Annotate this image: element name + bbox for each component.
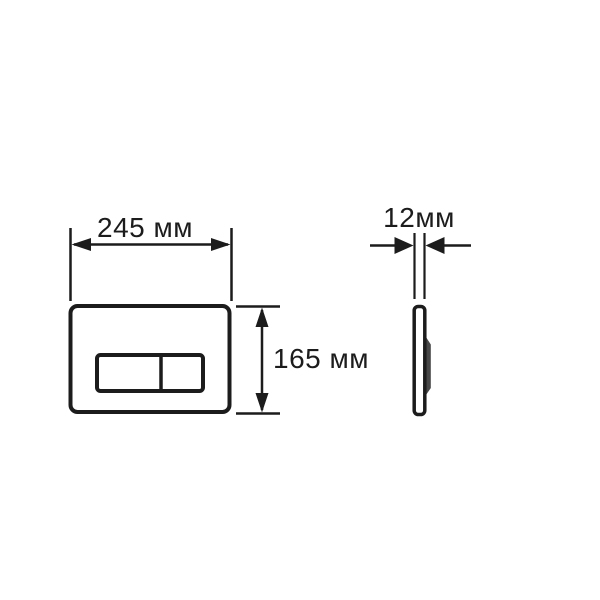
height-dimension: 165 мм bbox=[236, 307, 369, 414]
flush-plate-front-outline bbox=[71, 306, 230, 412]
technical-drawing: 245 мм 165 мм 12мм bbox=[0, 0, 600, 600]
arrowhead-up-icon bbox=[256, 308, 269, 328]
thickness-dimension: 12мм bbox=[370, 202, 471, 299]
front-view bbox=[71, 306, 230, 412]
side-view bbox=[414, 307, 431, 415]
width-dimension-label: 245 мм bbox=[97, 212, 193, 243]
thickness-dimension-label: 12мм bbox=[383, 202, 455, 233]
flush-plate-dimension-drawing: 245 мм 165 мм 12мм bbox=[0, 0, 600, 600]
arrowhead-inward-right-icon bbox=[426, 237, 445, 254]
arrowhead-down-icon bbox=[256, 393, 269, 413]
arrowhead-right-icon bbox=[211, 238, 231, 251]
button-group-outline bbox=[97, 355, 203, 391]
width-dimension: 245 мм bbox=[71, 212, 232, 301]
arrowhead-inward-left-icon bbox=[395, 237, 414, 254]
arrowhead-left-icon bbox=[72, 238, 92, 251]
height-dimension-label: 165 мм bbox=[273, 343, 369, 374]
flush-plate-side-outline bbox=[414, 307, 425, 415]
